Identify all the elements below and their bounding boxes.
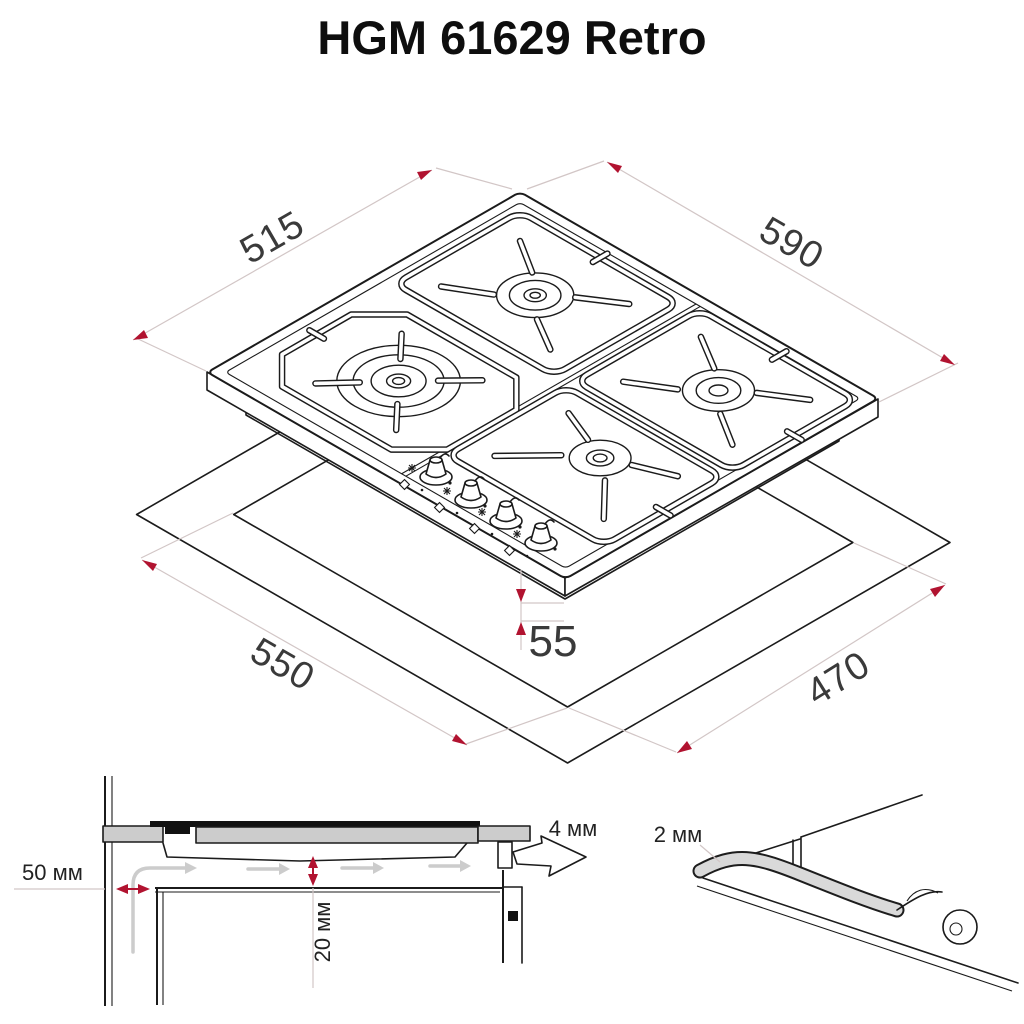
roll-core <box>950 923 962 935</box>
technical-drawing-canvas: 550 470 <box>0 0 1024 1024</box>
dim-label-55: 55 <box>529 617 578 666</box>
label-50mm: 50 мм <box>22 860 83 885</box>
arrowhead <box>116 884 128 894</box>
dim-label-515: 515 <box>233 203 312 273</box>
extension-line <box>854 543 946 584</box>
label-20mm: 20 мм <box>310 902 335 963</box>
clearance-20mm: 20 мм <box>308 856 335 988</box>
arrowhead <box>607 162 622 173</box>
hob-plate-right <box>478 826 530 841</box>
arrowhead <box>516 622 526 635</box>
overhang-arrow <box>513 836 586 876</box>
dimension-470: 470 <box>569 543 946 753</box>
extension-line <box>436 168 512 189</box>
arrowhead <box>940 354 955 365</box>
arrowhead <box>133 330 148 340</box>
burner-well <box>165 823 190 834</box>
fixing-screw <box>508 911 518 921</box>
airflow-arrowhead <box>460 860 471 872</box>
arrowhead <box>452 734 467 745</box>
worktop-cabinet <box>155 870 522 1005</box>
airflow-arrowhead <box>373 862 384 874</box>
spark-icon <box>408 464 416 472</box>
hob-profile <box>103 821 530 868</box>
arrowhead <box>417 170 432 180</box>
hob-plate-left <box>103 826 163 842</box>
arrowhead <box>308 874 318 886</box>
airflow-arrowhead <box>279 863 290 875</box>
spark-icon <box>478 508 486 516</box>
dim-label-470: 470 <box>799 643 878 714</box>
extension-line <box>527 161 604 189</box>
seal-roll <box>897 890 977 944</box>
installation-cross-section: 50 мм 20 мм 4 мм <box>14 776 597 1006</box>
clearance-50mm: 50 мм <box>14 860 150 894</box>
arrowhead <box>138 884 150 894</box>
label-4mm: 4 мм <box>549 816 598 841</box>
hob-top-strip <box>150 821 480 827</box>
arrowhead <box>516 589 526 602</box>
fixing-clamp <box>498 842 512 868</box>
hob-plate-main <box>196 827 478 843</box>
extension-line <box>141 513 233 558</box>
spark-icon <box>443 487 451 495</box>
arrowhead <box>677 741 692 753</box>
airflow-arrows <box>133 860 471 952</box>
arrowhead <box>930 585 945 597</box>
arrowhead <box>308 856 318 868</box>
extension-line <box>136 338 206 371</box>
hob-tub-profile <box>163 843 467 861</box>
spark-icon <box>513 530 521 538</box>
dim-label-590: 590 <box>752 209 831 279</box>
dimension-line <box>677 585 945 753</box>
extension-line <box>569 708 676 752</box>
arrowhead <box>142 560 157 571</box>
extension-line <box>879 363 958 402</box>
airflow-arrowhead <box>185 862 197 874</box>
label-2mm: 2 мм <box>654 822 703 847</box>
installation-drawing-page: HGM 61629 Retro 550 470 <box>0 0 1024 1024</box>
seal-detail-diagram: 2 мм <box>654 795 1018 991</box>
cutout-back-edge <box>801 795 922 837</box>
clearance-4mm: 4 мм <box>513 816 597 876</box>
dim-label-550: 550 <box>243 630 322 700</box>
